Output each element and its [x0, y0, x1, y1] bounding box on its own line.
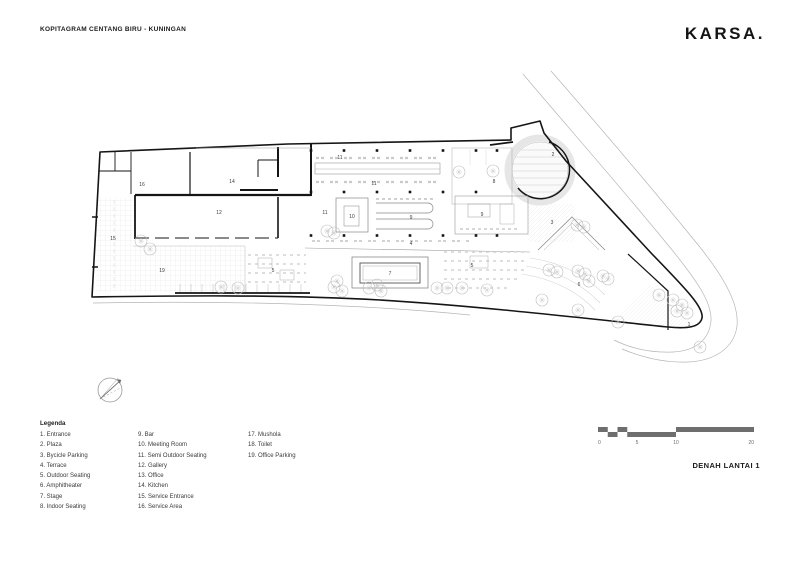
- legend-item: 6. Amphitheater: [40, 481, 138, 491]
- legend-item: 7. Stage: [40, 492, 138, 502]
- legend-item: 8. Indoor Seating: [40, 502, 138, 512]
- room-number-label: 8: [493, 179, 496, 185]
- room-number-label: 12: [216, 210, 222, 216]
- legend-item: 12. Gallery: [138, 461, 248, 471]
- room-number-label: 4: [410, 241, 413, 247]
- legend-column-1: 1. Entrance2. Plaza3. Bycicle Parking4. …: [40, 430, 138, 512]
- room-8-walls: [452, 148, 512, 204]
- room-number-label: 14: [229, 179, 235, 185]
- scale-tick: 10: [673, 440, 679, 446]
- legend-item: 4. Terrace: [40, 461, 138, 471]
- north-arrow-icon: [98, 378, 122, 402]
- drawing-title: DENAH LANTAI 1: [692, 461, 760, 470]
- legend-item: 2. Plaza: [40, 440, 138, 450]
- room-number-label: 2: [552, 152, 555, 158]
- room-number-label: 10: [349, 214, 355, 220]
- legend-title: Legenda: [40, 420, 296, 427]
- room-number-label: 7: [389, 271, 392, 277]
- legend-column-3: 17. Mushola18. Toilet19. Office Parking: [248, 430, 296, 512]
- scale-tick: 20: [748, 440, 754, 446]
- scale-tick: 5: [636, 440, 639, 446]
- legend-item: 18. Toilet: [248, 440, 296, 450]
- room-number-label: 11: [337, 155, 342, 161]
- legend-item: 11. Semi Outdoor Seating: [138, 451, 248, 461]
- room-number-label: 6: [578, 282, 581, 288]
- legend-item: 19. Office Parking: [248, 451, 296, 461]
- room-number-label: 9: [410, 215, 413, 221]
- legend-item: 3. Bycicle Parking: [40, 451, 138, 461]
- room-number-label: 9: [481, 212, 484, 218]
- room-number-label: 5: [272, 268, 275, 274]
- legend-columns: 1. Entrance2. Plaza3. Bycicle Parking4. …: [40, 430, 296, 512]
- legend-item: 16. Service Area: [138, 502, 248, 512]
- building-walls: [99, 142, 513, 239]
- room-number-label: 19: [159, 268, 165, 274]
- room-number-label: 11: [371, 181, 376, 187]
- legend-item: 17. Mushola: [248, 430, 296, 440]
- legend-item: 10. Meeting Room: [138, 440, 248, 450]
- scale-bar-ticks: 0 5 10 20: [598, 440, 754, 446]
- room-number-label: 5: [471, 263, 474, 269]
- legend-column-2: 9. Bar10. Meeting Room11. Semi Outdoor S…: [138, 430, 248, 512]
- scale-tick: 0: [598, 440, 601, 446]
- room-number-label: 15: [110, 236, 116, 242]
- ground-hatch: [96, 138, 695, 327]
- amphitheater-steps: [522, 258, 605, 310]
- legend-item: 14. Kitchen: [138, 481, 248, 491]
- site-boundary: [92, 121, 702, 330]
- room-number-label: 3: [551, 220, 554, 226]
- legend: Legenda 1. Entrance2. Plaza3. Bycicle Pa…: [40, 420, 296, 512]
- legend-item: 15. Service Entrance: [138, 492, 248, 502]
- room-number-label: 11: [322, 210, 327, 216]
- legend-item: 9. Bar: [138, 430, 248, 440]
- legend-item: 13. Office: [138, 471, 248, 481]
- room-number-label: 16: [139, 182, 145, 188]
- scale-bar: 0 5 10 20: [598, 427, 758, 454]
- legend-item: 1. Entrance: [40, 430, 138, 440]
- room-number-label: 1: [688, 322, 691, 328]
- scale-bar-cells: [598, 427, 754, 437]
- legend-item: 5. Outdoor Seating: [40, 471, 138, 481]
